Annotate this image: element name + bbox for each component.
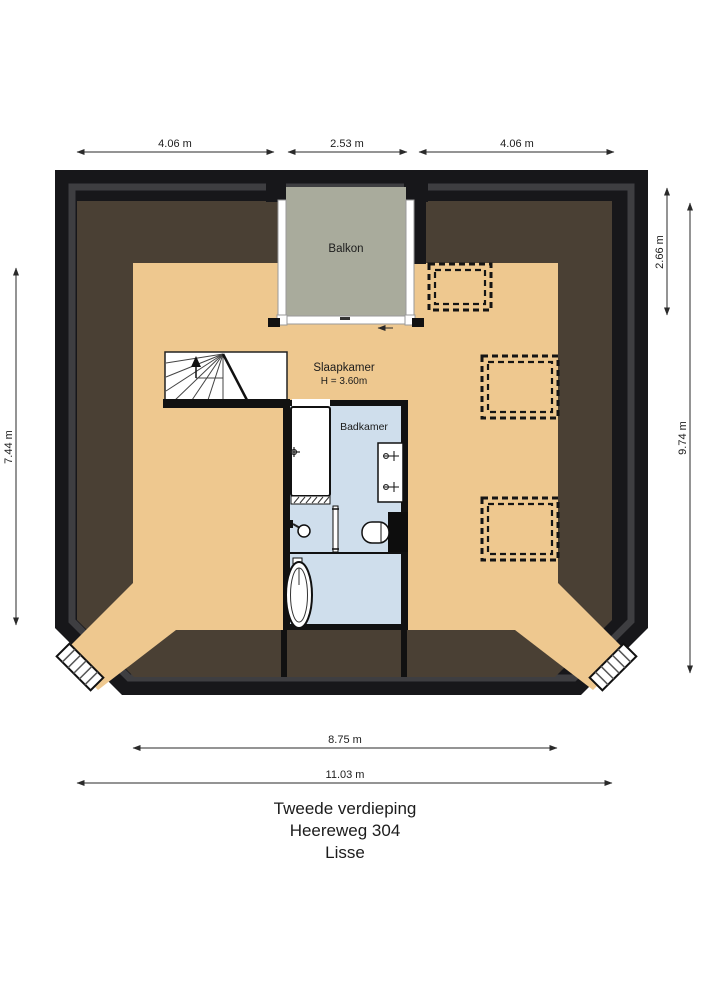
floorplan-drawing: Balkon xyxy=(0,0,707,1000)
bathroom-wall-stub-left xyxy=(281,630,287,677)
balcony-wall-left xyxy=(266,170,286,202)
dim-right-balcony-label: 2.66 m xyxy=(654,235,666,269)
balcony: Balkon xyxy=(266,170,428,328)
dim-right-total-label: 9.74 m xyxy=(677,421,689,455)
balcony-wall-right xyxy=(404,170,428,202)
vanity-sink xyxy=(378,443,403,502)
toilet-bowl xyxy=(362,522,389,543)
plan-title-city: Lisse xyxy=(325,843,365,862)
plan-title-street: Heereweg 304 xyxy=(290,821,401,840)
balcony-frame-foot-left xyxy=(268,318,280,327)
plan-title-floor: Tweede verdieping xyxy=(274,799,417,818)
bathroom-door-opening xyxy=(292,399,330,407)
stair-bottom-wall xyxy=(163,399,290,408)
dim-bottom-interior-label: 8.75 m xyxy=(328,734,362,746)
balcony-frame-left xyxy=(278,200,286,324)
balcony-frame-foot-right xyxy=(412,318,424,327)
stairs xyxy=(163,352,290,408)
dim-top-left-label: 4.06 m xyxy=(158,138,192,150)
balcony-wall-right-lower xyxy=(414,202,426,264)
bedroom-height-note: H = 3.60m xyxy=(321,376,367,387)
balcony-door-handle xyxy=(340,317,350,320)
balcony-label: Balkon xyxy=(328,243,363,255)
shower-screen-hatch xyxy=(291,496,330,504)
bedroom-label: Slaapkamer xyxy=(313,362,375,374)
dim-bottom-total-label: 11.03 m xyxy=(326,769,365,781)
floorplan-page: Balkon xyxy=(0,0,707,1000)
dim-top-right-label: 4.06 m xyxy=(500,138,534,150)
dim-left-total-label: 7.44 m xyxy=(3,430,15,464)
toilet-cistern xyxy=(388,512,408,552)
shower-door xyxy=(333,506,338,552)
dim-top-center-label: 2.53 m xyxy=(330,138,364,150)
bathroom-wall-stub-right xyxy=(401,630,407,677)
bathtub xyxy=(290,407,330,496)
balcony-frame-right xyxy=(406,200,414,324)
bathroom-label: Badkamer xyxy=(340,421,388,433)
plan-title: Tweede verdieping Heereweg 304 Lisse xyxy=(274,799,417,862)
